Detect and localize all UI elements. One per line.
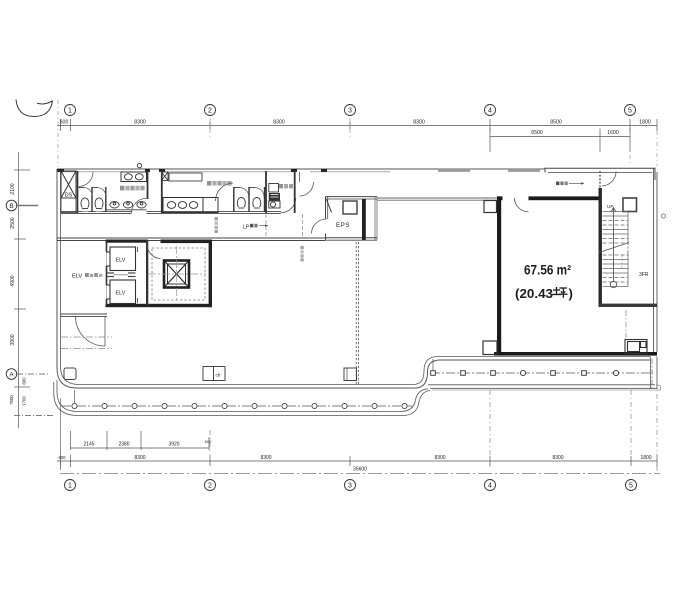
svg-text:8300: 8300 [552,455,563,461]
svg-text:5: 5 [629,483,633,490]
svg-text:1800: 1800 [640,455,651,461]
svg-text:ELV: ELV [72,274,82,280]
svg-text:6500: 6500 [531,130,543,136]
svg-text:1600: 1600 [607,130,619,136]
svg-text:1800: 1800 [639,120,651,126]
svg-text:8500: 8500 [550,120,562,126]
svg-text:2100: 2100 [10,183,16,194]
svg-text:1: 1 [68,483,72,490]
svg-text:1700: 1700 [22,396,27,406]
svg-text:8300: 8300 [134,455,145,461]
svg-text:67.56 m²: 67.56 m² [524,263,571,278]
svg-text:3FR: 3FR [639,272,649,278]
svg-text:3: 3 [348,483,352,490]
svg-text:8300: 8300 [434,455,445,461]
svg-text:A: A [9,372,14,379]
svg-text:600: 600 [205,439,212,444]
svg-text:4: 4 [488,108,492,115]
svg-text:1: 1 [68,108,72,115]
svg-text:EPS: EPS [336,222,350,229]
svg-text:600: 600 [59,455,67,460]
svg-text:): ) [569,286,573,301]
svg-text:8300: 8300 [413,120,425,126]
svg-text:600: 600 [22,377,27,385]
svg-text:LP: LP [243,225,250,231]
svg-text:5: 5 [628,108,632,115]
svg-text:(20.43: (20.43 [515,286,553,301]
svg-text:4: 4 [488,483,492,490]
svg-text:ELV: ELV [116,291,126,297]
svg-text:3: 3 [348,108,352,115]
svg-text:2145: 2145 [83,442,94,448]
svg-text:UP: UP [607,204,613,209]
svg-text:8300: 8300 [134,120,146,126]
svg-text:ELV: ELV [116,258,126,264]
svg-text:2500: 2500 [10,217,16,228]
svg-text:35600: 35600 [353,467,367,473]
svg-text:2380: 2380 [118,442,129,448]
svg-text:3900: 3900 [10,334,16,345]
svg-text:2: 2 [208,108,212,115]
svg-text:8300: 8300 [260,455,271,461]
svg-text:8300: 8300 [273,120,285,126]
svg-text:600: 600 [60,120,69,126]
svg-text:cb: cb [216,373,221,378]
svg-text:3920: 3920 [168,442,179,448]
svg-text:4900: 4900 [10,275,16,286]
svg-text:B: B [9,203,13,210]
svg-text:2: 2 [208,483,212,490]
svg-text:7500: 7500 [9,395,14,405]
